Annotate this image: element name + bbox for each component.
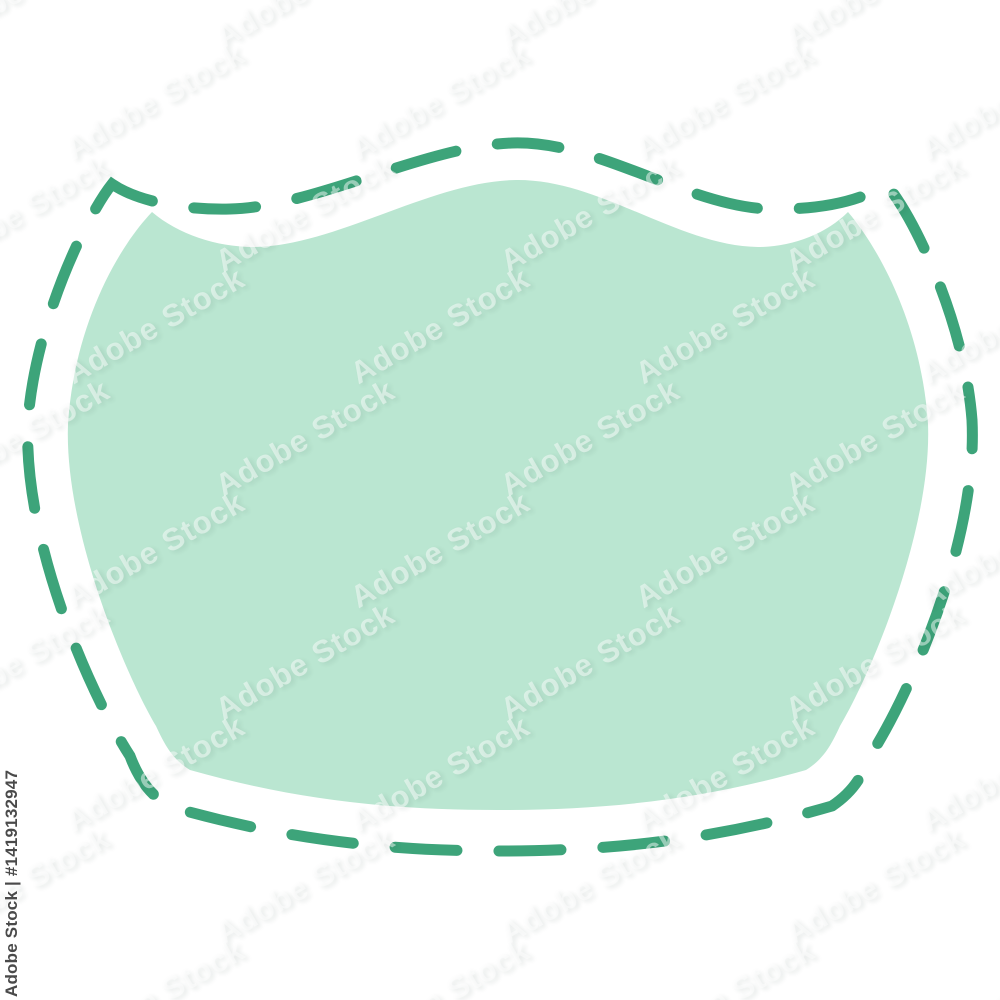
watermark-id-text: Adobe Stock | #1419132947	[2, 770, 22, 997]
stock-image-canvas: Adobe StockAdobe StockAdobe StockAdobe S…	[0, 0, 1000, 1000]
label-frame-fill	[68, 180, 928, 810]
label-frame-graphic	[0, 0, 1000, 1000]
